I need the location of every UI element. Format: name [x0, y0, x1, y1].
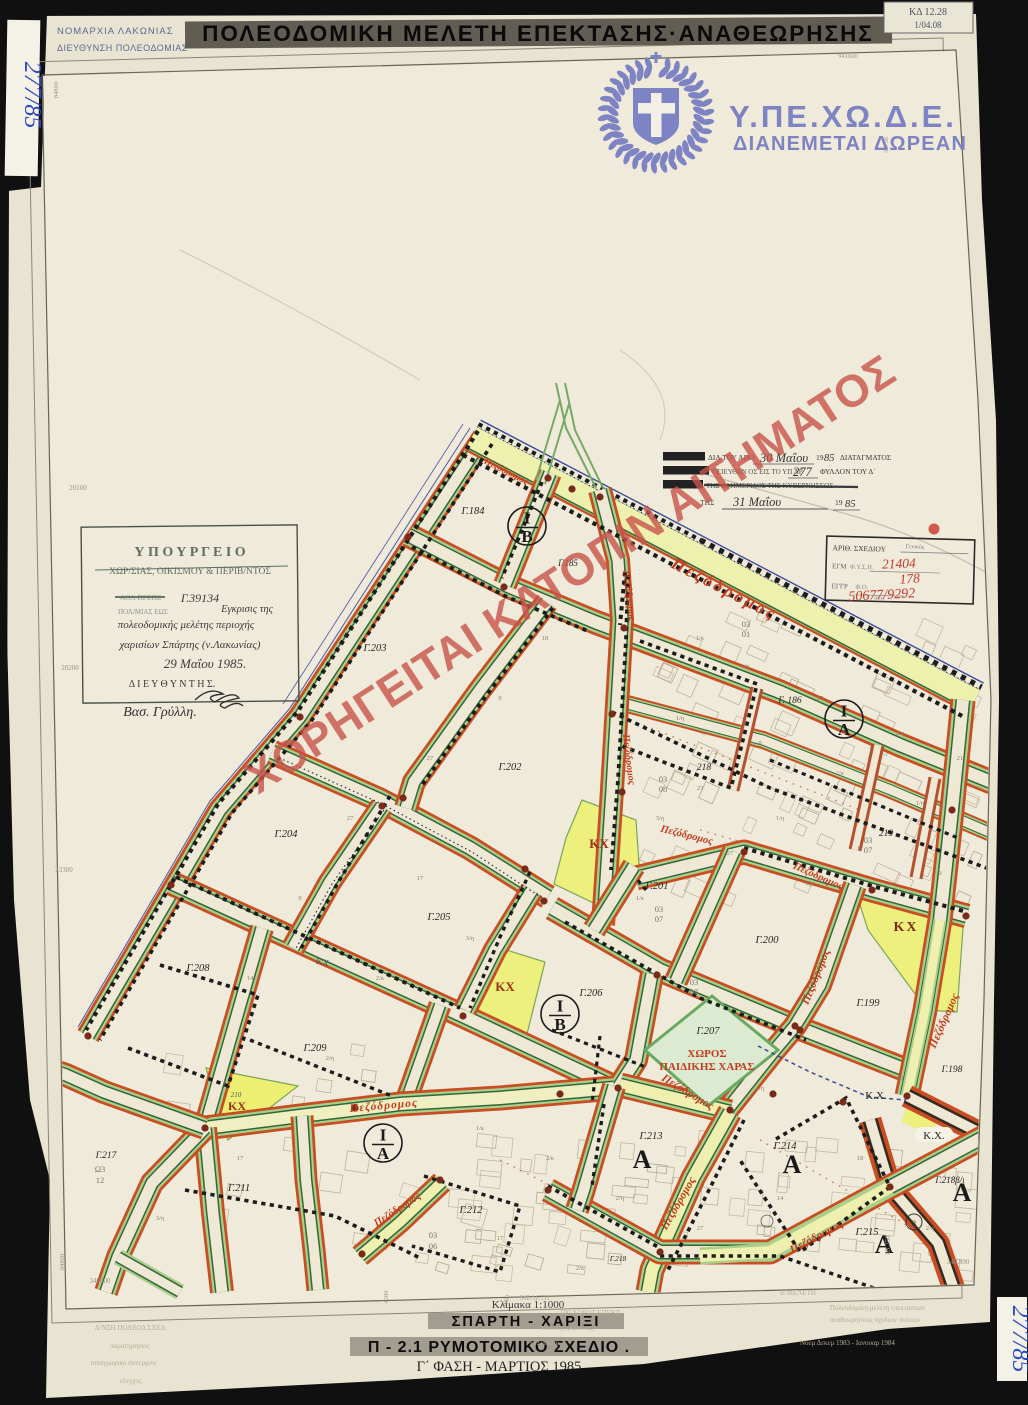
svg-text:03: 03 [659, 774, 668, 784]
svg-text:1/η: 1/η [916, 800, 925, 807]
svg-text:τοπογραφικο συνεργειο: τοπογραφικο συνεργειο [90, 1359, 157, 1367]
svg-text:06: 06 [429, 1241, 438, 1251]
svg-text:07: 07 [864, 845, 873, 855]
svg-text:27: 27 [727, 850, 734, 857]
svg-text:Β: Β [521, 527, 532, 546]
svg-text:277: 277 [793, 465, 813, 479]
svg-text:85.250: 85.250 [884, 1235, 892, 1255]
svg-text:Γ.203: Γ.203 [362, 643, 386, 654]
svg-text:ΜΕΛΕΤΗ: ΜΕΛΕΤΗ [520, 1294, 549, 1302]
svg-text:9: 9 [758, 740, 761, 747]
svg-text:17: 17 [237, 1155, 244, 1162]
svg-text:Γ.198: Γ.198 [941, 1065, 963, 1075]
svg-text:20200: 20200 [61, 664, 79, 672]
svg-text:178: 178 [899, 570, 920, 586]
svg-text:31 Μαΐου: 31 Μαΐου [732, 495, 781, 509]
svg-text:2/η: 2/η [926, 1225, 935, 1232]
svg-text:Γ.204: Γ.204 [273, 829, 298, 840]
svg-text:2/κ: 2/κ [546, 1155, 555, 1162]
svg-text:Ι: Ι [380, 1126, 387, 1145]
svg-text:Γ.200: Γ.200 [754, 935, 779, 946]
svg-text:12: 12 [96, 1175, 105, 1185]
svg-text:14: 14 [247, 975, 254, 982]
svg-text:ΠΟΛΕΟΔΟΜΙΚΗ ΜΕΛΕΤΗ ΕΠΕΚΤΑΣΗΣ: ΠΟΛΕΟΔΟΜΙΚΗ ΜΕΛΕΤΗ ΕΠΕΚΤΑΣΗΣ·ΑΝΑΘΕΩΡΗΣΗΣ [202, 21, 874, 46]
svg-text:9: 9 [498, 695, 501, 702]
svg-text:9: 9 [298, 895, 301, 902]
svg-text:ΑΡΙΘ. ΣΧΕΔΙΟΥ: ΑΡΙΘ. ΣΧΕΔΙΟΥ [832, 543, 886, 553]
svg-text:1/κ: 1/κ [696, 635, 705, 642]
svg-text:100 ΧΩΡΟΤ ΕΠΕΚΤ: 100 ΧΩΡΟΤ ΕΠΕΚΤ [560, 1309, 621, 1317]
svg-text:χαρισίων Σπάρτης (ν.Λακωνίας): χαρισίων Σπάρτης (ν.Λακωνίας) [119, 639, 261, 651]
svg-text:Π - 2.1 ΡΥΜΟΤΟΜΙΚΟ ΣΧΕΔΙΟ .: Π - 2.1 ΡΥΜΟΤΟΜΙΚΟ ΣΧΕΔΙΟ . [368, 1339, 630, 1356]
svg-text:2/κ: 2/κ [576, 1265, 585, 1272]
svg-text:Γ.209: Γ.209 [302, 1043, 327, 1054]
svg-text:ΕΓΜ: ΕΓΜ [832, 562, 848, 570]
svg-text:πολεοδομικής μελέτης περιοχής: πολεοδομικής μελέτης περιοχής [118, 619, 255, 631]
svg-text:Κ.Χ.: Κ.Χ. [923, 1130, 945, 1142]
svg-text:ΠΑΙΔΙΚΗΣ ΧΑΡΑΣ: ΠΑΙΔΙΚΗΣ ΧΑΡΑΣ [659, 1061, 754, 1073]
svg-text:03: 03 [690, 977, 699, 987]
svg-text:Δ Ι Ε Υ Θ Υ Ν Τ Η Σ.: Δ Ι Ε Υ Θ Υ Ν Τ Η Σ. [129, 679, 216, 690]
svg-text:ΔΙΑΤΑΓΜΑΤΟΣ: ΔΙΑΤΑΓΜΑΤΟΣ [840, 453, 891, 462]
svg-text:1/κ: 1/κ [636, 895, 645, 902]
svg-text:Γ.184: Γ.184 [460, 506, 485, 517]
svg-text:18: 18 [542, 635, 549, 642]
svg-text:Β: Β [554, 1015, 565, 1034]
svg-text:ΕΓΓΡ: ΕΓΓΡ [831, 582, 848, 590]
svg-text:Εγκρισις της: Εγκρισις της [220, 604, 273, 615]
svg-text:ΝΟΜΑΡΧΙΑ ΛΑΚΩΝΙΑΣ: ΝΟΜΑΡΧΙΑ ΛΑΚΩΝΙΑΣ [57, 26, 174, 37]
svg-text:210: 210 [231, 1091, 242, 1099]
svg-text:Γ.217: Γ.217 [95, 1151, 118, 1161]
svg-text:29 Μαΐου 1985.: 29 Μαΐου 1985. [164, 656, 246, 671]
svg-text:03: 03 [429, 1230, 438, 1240]
svg-text:19: 19 [835, 498, 843, 507]
svg-text:Βασ. Γρύλλη.: Βασ. Γρύλλη. [123, 705, 197, 720]
svg-text:14: 14 [777, 1195, 784, 1202]
svg-text:3/η: 3/η [466, 935, 475, 942]
svg-text:Γ.218: Γ.218 [609, 1254, 627, 1263]
svg-text:ΚΔ 12.28: ΚΔ 12.28 [909, 7, 947, 18]
svg-text:Γ.207: Γ.207 [695, 1026, 720, 1037]
svg-text:03: 03 [864, 835, 873, 845]
svg-text:23300: 23300 [55, 866, 73, 874]
svg-text:Γ. 186: Γ. 186 [777, 696, 801, 706]
svg-text:3/η: 3/η [156, 1215, 165, 1222]
svg-text:ΦΥΛΛΟΝ ΤΟΥ Δ΄: ΦΥΛΛΟΝ ΤΟΥ Δ΄ [820, 467, 876, 476]
svg-text:Γ. Σχεδίου: Γ. Σχεδίου [530, 1339, 560, 1347]
svg-text:23: 23 [897, 1075, 904, 1082]
svg-text:1/04.08: 1/04.08 [914, 20, 942, 30]
svg-text:85: 85 [845, 499, 856, 510]
svg-text:ΚΧ: ΚΧ [495, 979, 515, 994]
svg-text:17: 17 [417, 875, 424, 882]
svg-text:Γ΄ ΦΑΣΗ - ΜΑΡΤΙΟΣ 1985: Γ΄ ΦΑΣΗ - ΜΑΡΤΙΟΣ 1985 [417, 1359, 582, 1375]
svg-text:1/η: 1/η [776, 815, 785, 822]
svg-text:παρατηρησεις: παρατηρησεις [110, 1342, 150, 1350]
svg-text:Α: Α [783, 1150, 802, 1179]
svg-text:Γ.211: Γ.211 [227, 1183, 250, 1194]
svg-text:Α: Α [953, 1178, 972, 1207]
svg-text:Ι: Ι [524, 509, 531, 528]
svg-text:84800: 84800 [53, 82, 60, 98]
svg-text:ΔΙΕΥΘΥΝΣΗ ΠΟΛΕΟΔΟΜΙΑΣ: ΔΙΕΥΘΥΝΣΗ ΠΟΛΕΟΔΟΜΙΑΣ [57, 43, 188, 53]
svg-text:Πολεοδομικη μελετη επεκτασεων: Πολεοδομικη μελετη επεκτασεων [830, 1304, 925, 1312]
svg-text:219: 219 [879, 829, 894, 839]
svg-text:Η ΜΕΛΕΤΗ: Η ΜΕΛΕΤΗ [780, 1289, 816, 1297]
svg-text:Γ.208: Γ.208 [185, 963, 210, 974]
svg-text:Γ.213: Γ.213 [638, 1131, 662, 1142]
svg-text:ΚΧ: ΚΧ [228, 1099, 246, 1113]
svg-text:3: 3 [912, 1219, 916, 1228]
svg-text:Ι: Ι [557, 997, 564, 1016]
svg-text:Γ.205: Γ.205 [426, 912, 450, 923]
svg-text:84800: 84800 [59, 1254, 66, 1270]
svg-text:340.800: 340.800 [947, 1258, 970, 1266]
svg-text:27: 27 [427, 755, 434, 762]
svg-text:Γ.39134: Γ.39134 [180, 591, 219, 605]
svg-text:ΔΙΑΝΕΜΕΤΑΙ ΔΩΡΕΑΝ: ΔΙΑΝΕΜΕΤΑΙ ΔΩΡΕΑΝ [733, 133, 967, 155]
svg-text:27: 27 [817, 695, 824, 702]
svg-text:27: 27 [347, 815, 354, 822]
svg-text:01: 01 [742, 629, 751, 639]
svg-text:21: 21 [957, 755, 964, 762]
svg-text:Υ Π Ο Υ Ρ Γ Ε Ι Ο: Υ Π Ο Υ Ρ Γ Ε Ι Ο [134, 545, 245, 560]
svg-text:2/η: 2/η [616, 1195, 625, 1202]
svg-text:3/η: 3/η [656, 815, 665, 822]
svg-text:1/η: 1/η [741, 663, 750, 670]
svg-text:18: 18 [857, 1155, 864, 1162]
svg-text:277/85: 277/85 [1007, 1306, 1028, 1373]
svg-text:19: 19 [816, 453, 824, 462]
svg-text:03: 03 [655, 904, 664, 914]
svg-text:ΠΟΛ/ΜΙΑΣ ΕΩΣ: ΠΟΛ/ΜΙΑΣ ΕΩΣ [118, 608, 168, 616]
svg-text:218: 218 [697, 763, 712, 773]
svg-text:340800: 340800 [90, 1277, 112, 1285]
svg-text:1/κ: 1/κ [476, 1125, 485, 1132]
svg-text:αναθεωρήσεως σχεδιων πολεων: αναθεωρήσεως σχεδιων πολεων [830, 1316, 920, 1324]
svg-text:2/κ: 2/κ [836, 770, 845, 777]
svg-text:ΚΧ: ΚΧ [894, 920, 919, 935]
svg-text:Δ/ΝΣΗ ΠΟΛΕΟΔ ΣΧΕΔ: Δ/ΝΣΗ ΠΟΛΕΟΔ ΣΧΕΔ [95, 1324, 166, 1332]
svg-text:ΚΧ: ΚΧ [589, 836, 609, 851]
svg-text:03: 03 [742, 619, 751, 629]
svg-text:08: 08 [659, 784, 668, 794]
svg-text:07: 07 [690, 987, 699, 997]
svg-text:2/η: 2/η [326, 1055, 335, 1062]
svg-text:Γ.201: Γ.201 [644, 881, 668, 892]
svg-text:Ι: Ι [841, 702, 848, 721]
svg-text:1/η: 1/η [676, 715, 685, 722]
svg-text:4200: 4200 [383, 1291, 390, 1304]
svg-text:Γ.199: Γ.199 [855, 998, 880, 1009]
svg-text:ελεγχος: ελεγχος [120, 1377, 142, 1385]
svg-text:2/κ: 2/κ [376, 975, 385, 982]
svg-text:27: 27 [697, 1225, 704, 1232]
svg-text:85: 85 [824, 453, 835, 464]
svg-text:ΧΩΡΟΣ: ΧΩΡΟΣ [687, 1048, 726, 1060]
svg-text:Φ.Υ.Σ.Η.: Φ.Υ.Σ.Η. [850, 564, 874, 572]
svg-text:Γ.212: Γ.212 [458, 1205, 483, 1216]
svg-text:23: 23 [697, 785, 704, 792]
svg-text:Κ.Χ.: Κ.Χ. [865, 1090, 887, 1102]
svg-text:9: 9 [938, 870, 941, 877]
svg-text:Α: Α [633, 1145, 652, 1174]
svg-text:17: 17 [497, 1235, 504, 1242]
svg-text:Α: Α [838, 720, 851, 739]
svg-text:17: 17 [857, 845, 864, 852]
svg-text:Νοεμ Δεκεμ 1983 - Ιανουαρ 1984: Νοεμ Δεκεμ 1983 - Ιανουαρ 1984 [800, 1339, 895, 1347]
svg-text:21404: 21404 [882, 555, 917, 571]
svg-text:Α: Α [377, 1144, 390, 1163]
svg-text:Υ.ΠΕ.ΧΩ.Δ.Ε.: Υ.ΠΕ.ΧΩ.Δ.Ε. [729, 99, 957, 134]
svg-text:941600: 941600 [838, 53, 858, 60]
svg-text:07: 07 [655, 914, 664, 924]
svg-text:Γ.206: Γ.206 [578, 988, 603, 999]
svg-text:2/η: 2/η [896, 730, 905, 737]
svg-text:Ω3: Ω3 [95, 1164, 106, 1174]
svg-text:1/η: 1/η [756, 1085, 765, 1092]
svg-text:Γ.202: Γ.202 [497, 762, 522, 773]
svg-text:Μελέτη εγκρίσεως: Μελέτη εγκρίσεως [540, 1324, 593, 1332]
svg-text:20100: 20100 [69, 484, 87, 492]
svg-text:Γενικός: Γενικός [906, 544, 925, 551]
svg-text:1/κ: 1/κ [806, 880, 815, 887]
svg-text:277/85: 277/85 [19, 62, 45, 129]
